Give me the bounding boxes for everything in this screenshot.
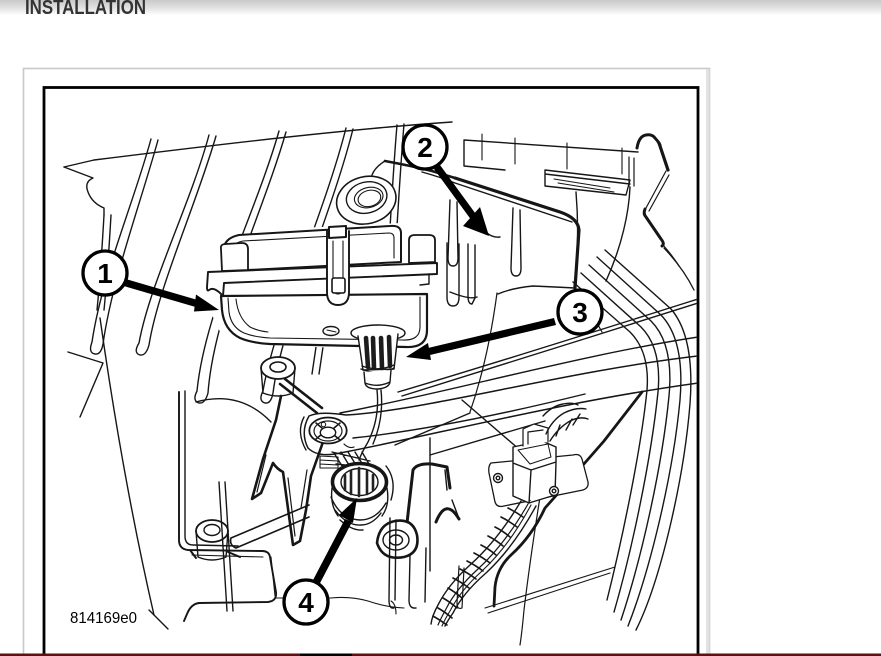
svg-text:1: 1 bbox=[97, 258, 113, 289]
svg-text:814169e0: 814169e0 bbox=[70, 610, 137, 627]
svg-text:3: 3 bbox=[572, 297, 588, 328]
svg-text:4: 4 bbox=[298, 587, 314, 618]
svg-text:2: 2 bbox=[417, 132, 433, 163]
svg-text:INSTALLATION: INSTALLATION bbox=[25, 0, 146, 19]
